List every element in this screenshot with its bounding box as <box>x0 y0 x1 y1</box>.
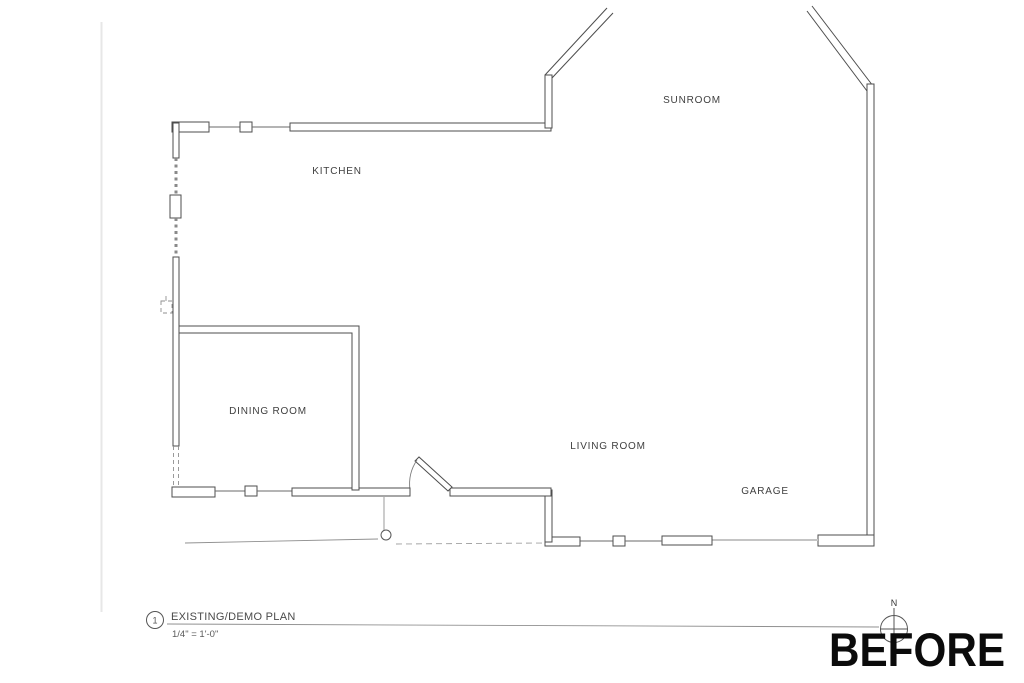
wall-step <box>545 490 552 542</box>
utility-box-dashed <box>161 301 172 313</box>
wall-dining-bottom <box>292 488 410 496</box>
entry-door-swing-arc <box>410 460 417 490</box>
wall-sunroom-right-angle <box>812 6 873 86</box>
wall-garage-bottom <box>662 536 712 545</box>
overhang-dashed-line <box>396 543 545 544</box>
room-label-living-room: LIVING ROOM <box>570 441 645 452</box>
wall-living-bottom <box>450 488 551 496</box>
wall-endcap <box>172 487 215 497</box>
wall-left <box>173 123 179 158</box>
title-block: 1 EXISTING/DEMO PLAN 1/4" = 1'-0" <box>147 611 880 640</box>
exterior-walls <box>161 6 874 546</box>
window-mullion <box>613 536 625 546</box>
wall-sunroom-left-angle <box>545 8 607 75</box>
room-labels: KITCHEN SUNROOM DINING ROOM LIVING ROOM … <box>229 95 789 497</box>
wall-right <box>867 84 874 540</box>
window-mullion <box>240 122 252 132</box>
window-mullion <box>170 195 181 218</box>
wall-kitchen-top <box>290 123 551 131</box>
site-edge-line <box>185 539 378 543</box>
entry-door-leaf <box>415 457 452 491</box>
drawing-sheet: KITCHEN SUNROOM DINING ROOM LIVING ROOM … <box>0 0 1024 683</box>
window-mullion <box>245 486 257 496</box>
detail-number: 1 <box>152 616 157 626</box>
floor-plan-drawing: KITCHEN SUNROOM DINING ROOM LIVING ROOM … <box>0 0 1024 683</box>
wall-sunroom-left <box>545 75 552 128</box>
post-symbol <box>381 530 391 540</box>
wall-endcap <box>818 535 874 546</box>
title-underline <box>167 624 879 627</box>
room-label-dining-room: DINING ROOM <box>229 406 307 417</box>
drawing-title: EXISTING/DEMO PLAN <box>171 611 296 623</box>
site-lines <box>185 497 545 544</box>
wall-sunroom-right-angle <box>807 11 867 91</box>
drawing-scale: 1/4" = 1'-0" <box>172 629 218 640</box>
room-label-kitchen: KITCHEN <box>312 166 362 177</box>
north-label: N <box>891 598 898 608</box>
before-stamp: BEFORE <box>829 623 1005 676</box>
room-label-sunroom: SUNROOM <box>663 95 721 106</box>
wall-left <box>173 257 179 446</box>
wall-sunroom-left-angle <box>552 13 613 78</box>
room-label-garage: GARAGE <box>741 486 789 497</box>
